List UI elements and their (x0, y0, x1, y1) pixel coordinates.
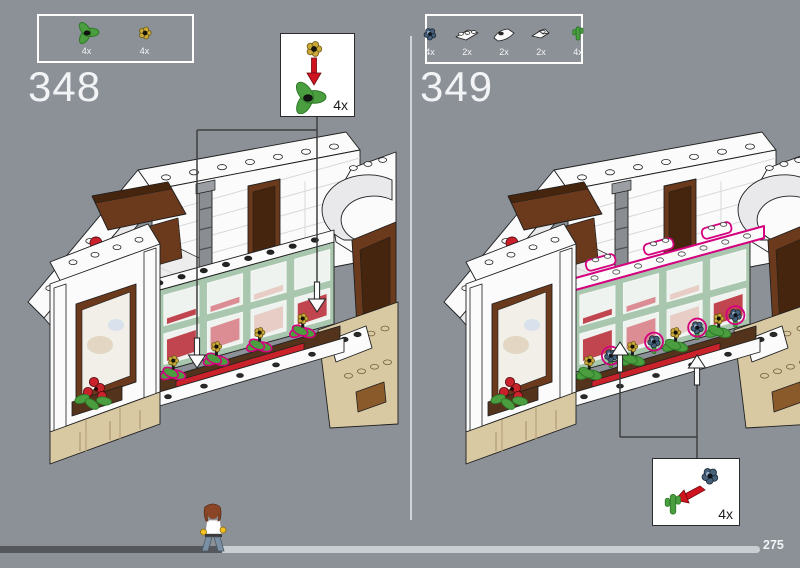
part-quantity: 4x (425, 47, 435, 57)
part-quantity: 2x (462, 47, 472, 57)
sand-blue-flower-icon (415, 22, 445, 46)
part-gold-flower: 4x (130, 21, 160, 56)
white-plate-1x3-icon (452, 22, 482, 46)
red-arrow-down-icon (307, 58, 321, 85)
minifigure (201, 504, 227, 551)
lego-model (444, 132, 800, 464)
progress-bar-completed (0, 546, 222, 553)
part-quantity: 4x (573, 47, 583, 57)
step-348-panel: 4x4x 348 4x (0, 0, 410, 568)
part-quantity: 2x (499, 47, 509, 57)
lego-model (28, 116, 398, 464)
part-green-stem: 4x (563, 22, 593, 57)
part-plant-leaves: 4x (72, 21, 102, 56)
part-white-plate-1x3: 2x (452, 22, 482, 57)
plant-leaves-part (293, 79, 326, 114)
step-349-panel: 4x2x2x2x4x 349 4x (411, 0, 800, 568)
green-stem-part (665, 495, 680, 515)
callout-quantity-349: 4x (718, 506, 733, 522)
parts-list-box-348: 4x4x (37, 14, 194, 63)
green-stem-icon (563, 22, 593, 46)
progress-minifigure-icon (198, 501, 228, 553)
gold-flower-part (307, 41, 322, 56)
sand-blue-flower-part (702, 469, 718, 485)
callout-quantity-348: 4x (333, 97, 348, 113)
step-number-348: 348 (28, 66, 101, 108)
gold-flower-icon (130, 21, 160, 45)
part-sand-blue-flower: 4x (415, 22, 445, 57)
step-number-349: 349 (420, 66, 493, 108)
page-number: 275 (763, 538, 784, 552)
part-white-angle-plate: 2x (526, 22, 556, 57)
subassembly-callout-348: 4x (280, 33, 355, 117)
instruction-page: 4x4x 348 4x 4x2x2x2x4x 349 4x 275 (0, 0, 800, 568)
part-quantity: 4x (140, 46, 150, 56)
plant-leaves-icon (72, 21, 102, 45)
subassembly-callout-349: 4x (652, 458, 740, 526)
white-curved-slope-icon (489, 22, 519, 46)
parts-list-box-349: 4x2x2x2x4x (425, 14, 583, 64)
white-angle-plate-icon (526, 22, 556, 46)
part-quantity: 4x (82, 46, 92, 56)
part-quantity: 2x (536, 47, 546, 57)
part-white-curved-slope: 2x (489, 22, 519, 57)
page-divider-line (410, 36, 412, 520)
